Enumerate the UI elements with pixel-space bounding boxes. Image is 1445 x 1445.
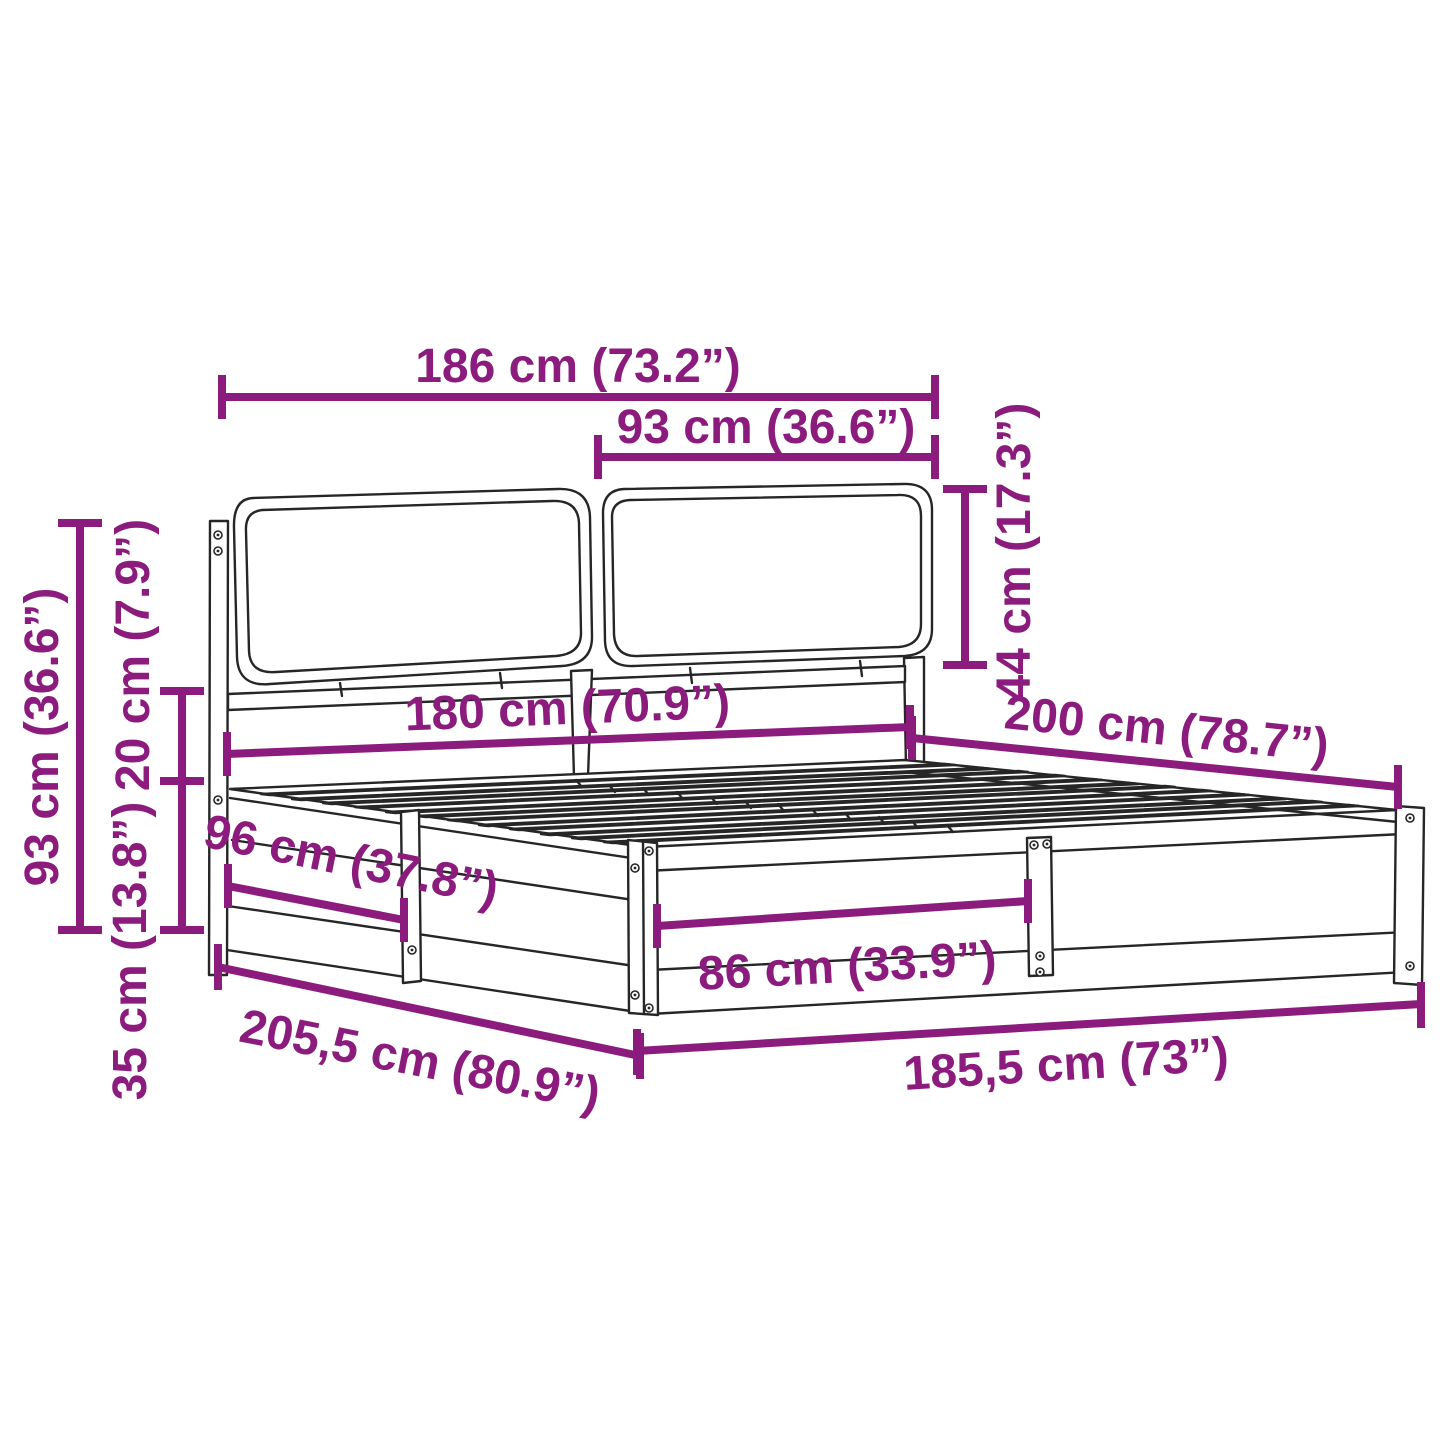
dim-label-base-height: 35 cm (13.8”) (104, 802, 157, 1101)
screw (631, 864, 639, 872)
dimension-side-bay: 96 cm (37.8”) (199, 805, 502, 942)
dimension-base-height: 35 cm (13.8”) (104, 781, 204, 1100)
headboard-cushion-left (234, 489, 592, 684)
dim-label-headboard-clearance: 20 cm (7.9”) (107, 519, 160, 791)
screw (1036, 968, 1044, 976)
dim-label-cushion-width: 93 cm (36.6”) (617, 401, 916, 454)
dim-label-outer-length: 205,5 cm (80.9”) (235, 1000, 604, 1122)
screw (645, 847, 653, 855)
headboard-cushion-right (603, 484, 932, 666)
dim-label-front-bay: 86 cm (33.9”) (697, 932, 998, 1001)
screw (645, 1004, 653, 1012)
dimension-cushion-height: 44 cm (17.3”) (943, 403, 1041, 702)
slats (261, 764, 1359, 843)
diagram-canvas: 186 cm (73.2”) 93 cm (36.6”) 44 cm (17.3… (0, 0, 1445, 1445)
screw (214, 796, 222, 804)
screw (631, 991, 639, 999)
dim-label-outer-width: 185,5 cm (73”) (902, 1028, 1230, 1101)
screw (1043, 840, 1051, 848)
dimension-total-height: 93 cm (36.6”) (16, 523, 102, 930)
bed-dimension-diagram: 186 cm (73.2”) 93 cm (36.6”) 44 cm (17.3… (0, 0, 1445, 1445)
screw (1030, 841, 1038, 849)
screw (1406, 962, 1414, 970)
screw (408, 946, 416, 954)
right-corner-leg (1394, 806, 1424, 985)
screw (214, 547, 222, 555)
screw (1406, 814, 1414, 822)
dimension-outer-length: 205,5 cm (80.9”) (218, 944, 640, 1122)
screw (1036, 952, 1044, 960)
dimension-headboard-clearance: 20 cm (7.9”) (107, 519, 204, 791)
dimension-outer-width: 185,5 cm (73”) (637, 982, 1421, 1101)
dimension-front-bay: 86 cm (33.9”) (657, 879, 1028, 1001)
dim-label-total-height: 93 cm (36.6”) (16, 588, 69, 887)
dimension-cushion-width: 93 cm (36.6”) (598, 401, 935, 479)
dim-label-cushion-height: 44 cm (17.3”) (988, 403, 1041, 702)
screw (214, 531, 222, 539)
dim-label-headboard-width: 186 cm (73.2”) (415, 340, 741, 393)
